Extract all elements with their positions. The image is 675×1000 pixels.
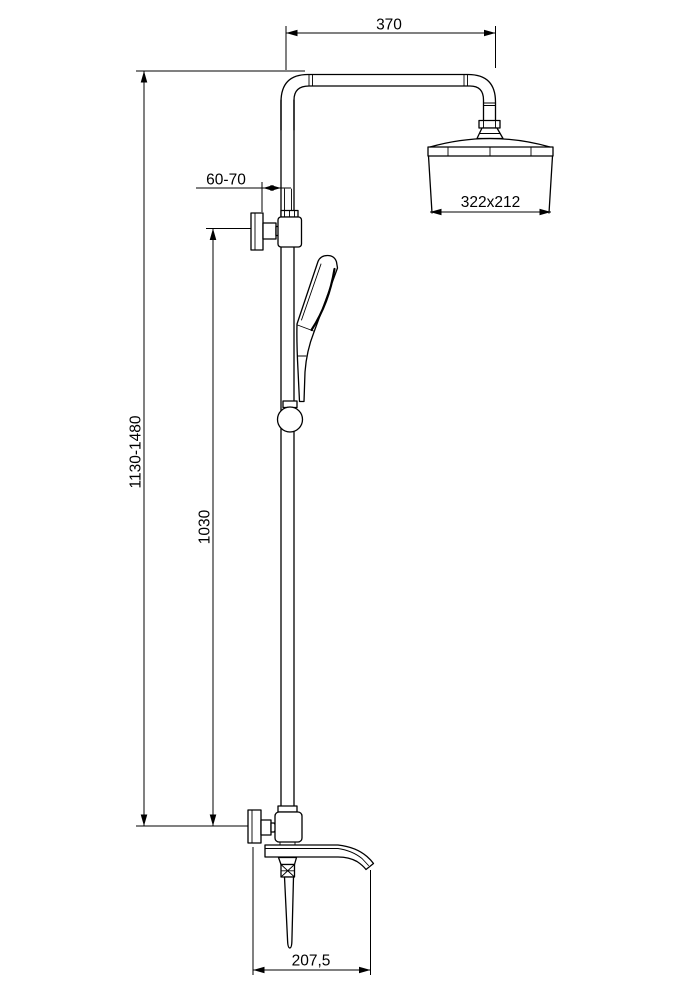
drawing-page: 1130-1480 1030 370 60-70 <box>0 0 675 1000</box>
technical-drawing: 1130-1480 1030 370 60-70 <box>0 0 675 1000</box>
riser-pipe <box>281 100 294 806</box>
dimension-bar-height: 1030 <box>197 229 256 827</box>
bar-height-label: 1030 <box>197 509 214 544</box>
head-size-label: 322x212 <box>461 194 520 211</box>
head-connector <box>477 121 503 139</box>
dimension-spout-reach: 207,5 <box>253 847 371 975</box>
upper-wall-bracket <box>251 213 281 250</box>
arm-reach-label: 370 <box>376 17 402 34</box>
dimension-arm-reach: 370 <box>286 17 496 71</box>
spout-reach-label: 207,5 <box>292 953 331 970</box>
dimension-head-size: 322x212 <box>430 194 551 215</box>
total-height-label: 1130-1480 <box>128 415 145 488</box>
arm-joint-seams <box>309 75 496 106</box>
dimension-wall-distance: 60-70 <box>196 172 291 213</box>
shower-arm <box>281 75 496 131</box>
wall-distance-label: 60-70 <box>206 172 246 189</box>
lever-handle <box>285 877 294 948</box>
spout-nut <box>279 858 297 878</box>
hand-shower <box>297 256 338 402</box>
lower-wall-bracket <box>248 810 276 843</box>
upper-diverter-valve <box>278 211 302 248</box>
mixer-valve <box>275 806 302 845</box>
